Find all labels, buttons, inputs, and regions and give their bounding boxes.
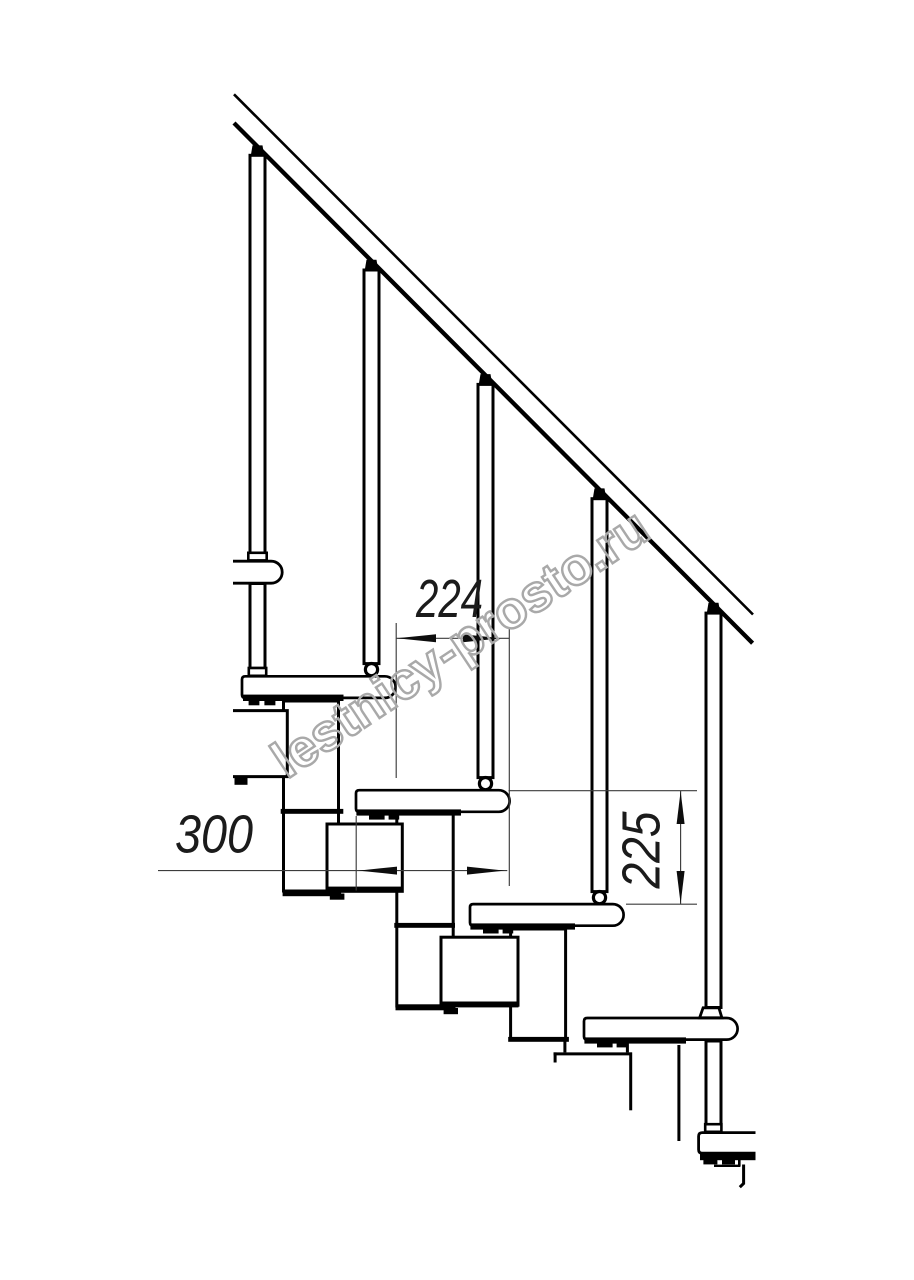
svg-text:300: 300 [175, 805, 253, 865]
svg-text:225: 225 [612, 811, 672, 890]
